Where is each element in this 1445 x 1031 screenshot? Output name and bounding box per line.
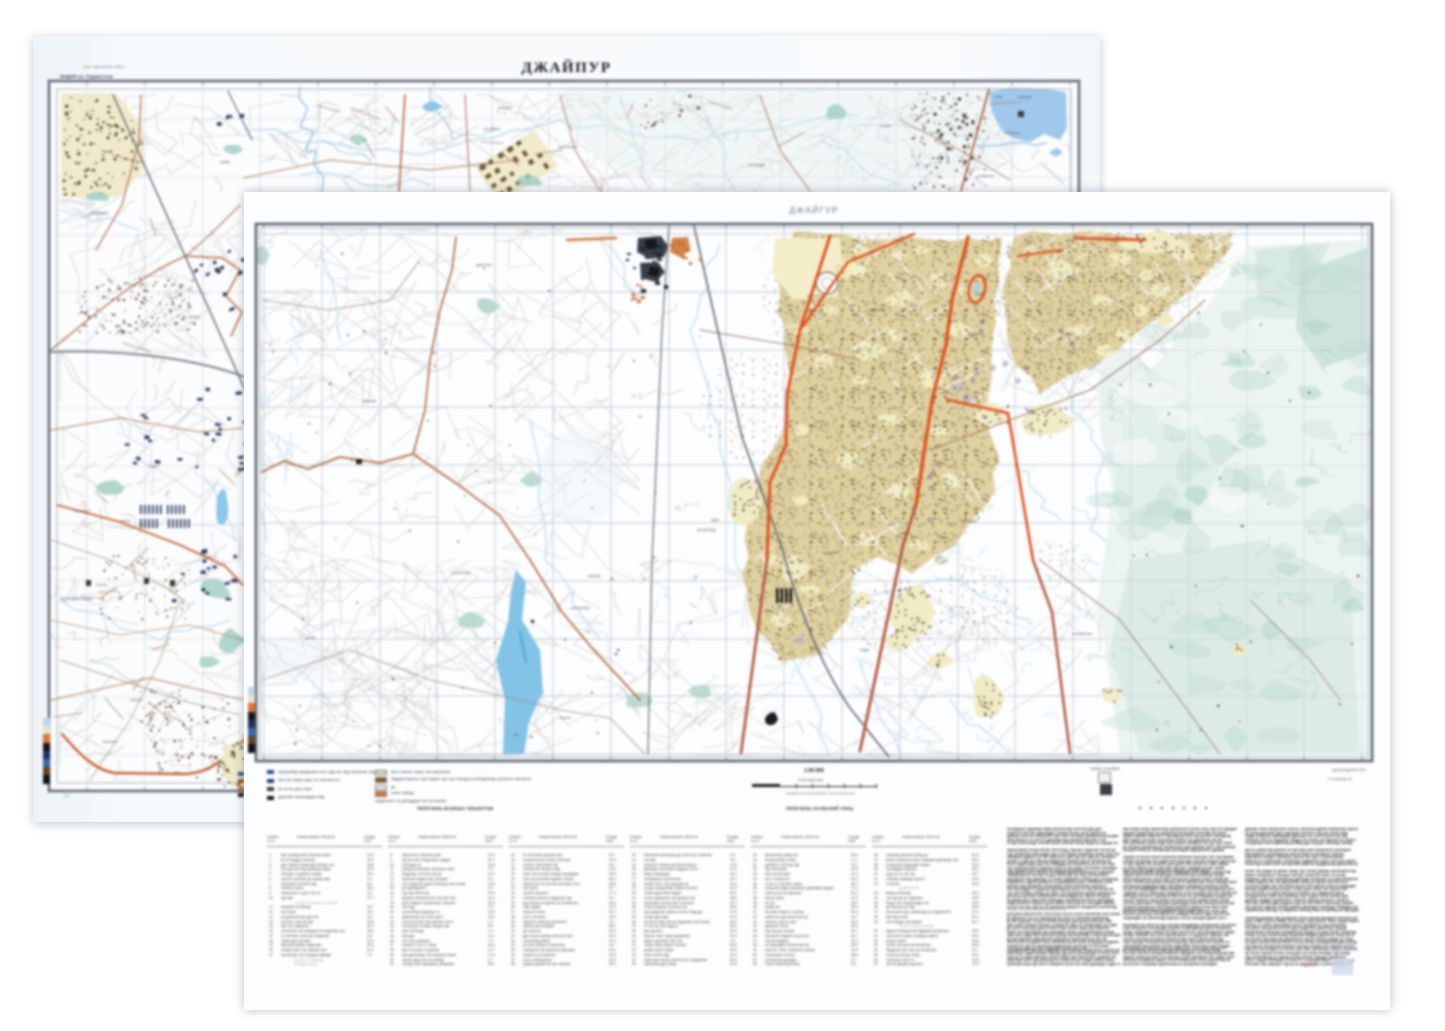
svg-text:варпра: варпра	[588, 574, 601, 578]
svg-text:салгогархри нириве: салгогархри нириве	[60, 597, 93, 601]
svg-text:пурведе: пурведе	[362, 399, 376, 403]
svg-text:маде: маде	[860, 648, 869, 652]
svg-text:салсингхми: салсингхми	[1072, 632, 1092, 636]
svg-text:салсингхве: салсингхве	[451, 571, 471, 575]
svg-text:вени: вени	[203, 555, 211, 559]
svg-text:нагарниве: нагарниве	[747, 163, 765, 167]
svg-text:мигархбад: мигархбад	[697, 528, 716, 532]
svg-text:веку: веку	[975, 292, 983, 296]
svg-text:мивема: мивема	[226, 580, 240, 584]
svg-text:сингхми: сингхми	[74, 509, 88, 513]
svg-text:хансал: хансал	[96, 583, 108, 587]
svg-text:ловар: ловар	[479, 162, 490, 166]
svg-text:магархра: магархра	[1004, 131, 1021, 135]
svg-text:кувар: кувар	[220, 160, 230, 164]
svg-text:сингхчан: сингхчан	[978, 174, 994, 178]
svg-text:лохан: лохан	[120, 519, 130, 523]
svg-text:салпурджа: салпурджа	[89, 211, 109, 215]
svg-text:ломи: ломи	[994, 95, 1003, 99]
svg-text:салгархвар: салгархвар	[570, 606, 590, 610]
svg-text:чанпра: чанпра	[130, 698, 143, 702]
svg-text:палскаска: палскаска	[807, 294, 826, 298]
svg-text:нисингх: нисингх	[498, 106, 512, 110]
svg-text:чанчанло: чанчанло	[483, 127, 500, 131]
svg-text:годра: годра	[149, 464, 160, 468]
svg-text:гархло: гархло	[559, 716, 571, 720]
svg-text:куми: куми	[711, 518, 719, 522]
svg-text:праварни: праварни	[868, 308, 885, 312]
svg-text:прани: прани	[305, 636, 316, 640]
svg-text:дебад: дебад	[189, 315, 200, 319]
svg-text:салсингх: салсингх	[102, 740, 118, 744]
svg-text:гопра: гопра	[881, 124, 892, 128]
svg-text:дранагар: дранагар	[961, 519, 977, 523]
svg-text:драгочан: драгочан	[476, 263, 492, 267]
svg-text:верапра: верапра	[1018, 95, 1032, 99]
svg-text:нагарма: нагарма	[822, 551, 837, 555]
svg-text:сингхниска: сингхниска	[558, 145, 578, 149]
